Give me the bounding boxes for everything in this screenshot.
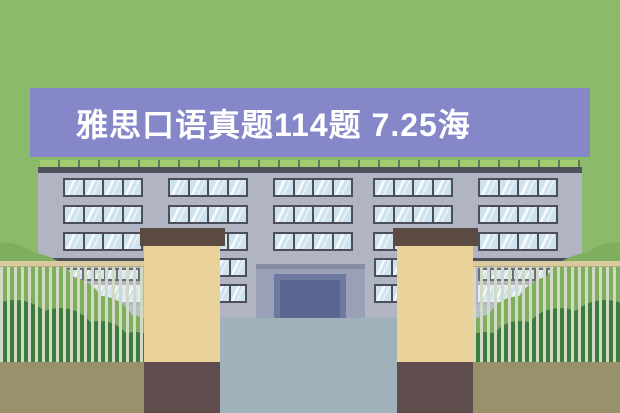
ground-left (0, 362, 144, 413)
page-title: 雅思口语真题114题 7.25海 (76, 100, 471, 146)
fence-posts-right (473, 267, 620, 362)
title-banner: 雅思口语真题114题 7.25海 (30, 88, 590, 157)
school-cover-illustration: 雅思口语真题114题 7.25海 (0, 0, 620, 413)
gate-pillar-right-base (397, 362, 473, 413)
gate-pillar-left-body (144, 246, 220, 362)
ground-right (473, 362, 620, 413)
gate-pillar-right-body (397, 246, 473, 362)
fence-posts-left (0, 267, 144, 362)
gate-pillar-left-cap (140, 228, 225, 246)
gate-pillar-right-cap (393, 228, 478, 246)
gate-pillar-left-base (144, 362, 220, 413)
